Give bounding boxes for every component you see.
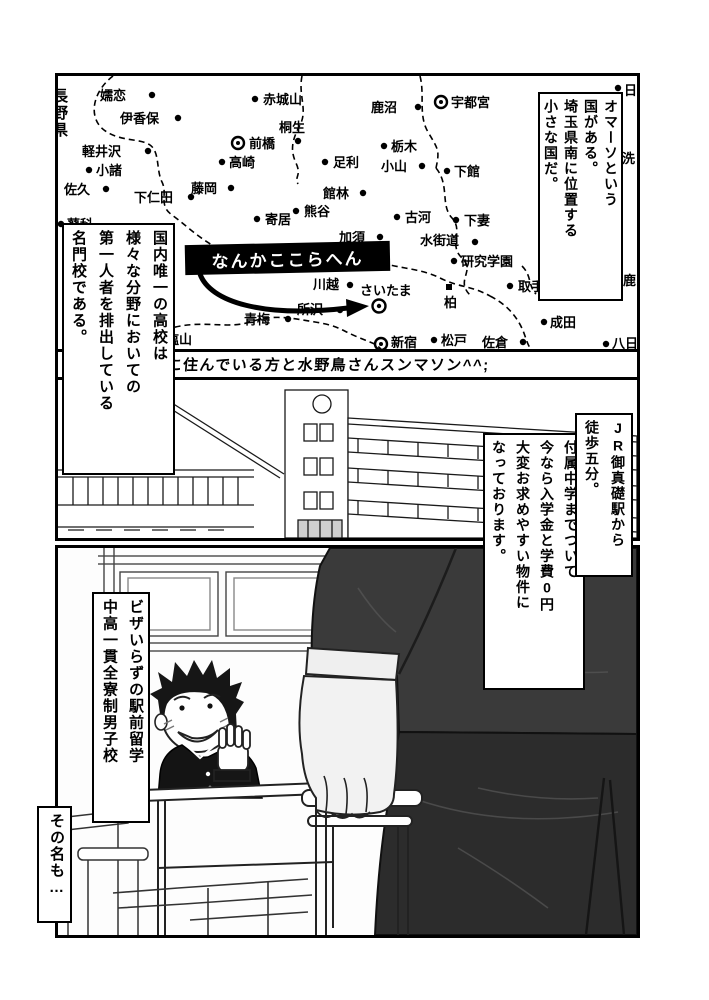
map-city-label: 藤岡 <box>191 181 217 196</box>
map-city-label: 佐久 <box>63 182 91 197</box>
map-city-label: 佐倉 <box>481 335 509 349</box>
manga-page: { "page": {"bg": "#ffffff", "ink": "#000… <box>0 0 709 1000</box>
arrow-icon <box>200 274 369 317</box>
map-city-label: 松戸 <box>441 333 467 348</box>
map-city-label: 寄居 <box>265 212 291 227</box>
map-note-text: なんかここらへん <box>211 244 363 272</box>
map-city-label: 熊谷 <box>304 204 331 219</box>
map-city-label: 前橋 <box>249 136 276 151</box>
map-city-label: 栃木 <box>391 139 418 154</box>
map-city-label: 鹿 <box>623 273 636 288</box>
map-city-label: 川越 <box>312 277 340 292</box>
map-city-label: 軽井沢 <box>82 144 122 159</box>
map-city-label: 小諸 <box>96 163 122 178</box>
map-city-label: 柏 <box>444 295 457 310</box>
map-city-label: 桐生 <box>279 120 305 135</box>
map-city-label: 宇都宮 <box>451 95 490 110</box>
map-city-label: 下館 <box>454 164 480 179</box>
map-city-label: 古河 <box>405 210 431 225</box>
map-city-label: 洗 <box>622 151 635 166</box>
pale-hand <box>299 676 397 815</box>
map-city-label: 下仁田 <box>134 190 173 205</box>
map-city-label: 嬬恋 <box>99 88 126 103</box>
map-city-label: 赤城山 <box>263 92 302 107</box>
caption-its-name: その名も… <box>37 806 72 923</box>
prefecture-edge-label: 長野県 <box>55 88 70 139</box>
map-city-label: 鹿沼 <box>371 100 397 115</box>
caption-elite-school: 国内唯一の高校は 様々な分野においての 第一人者を排出している 名門校である。 <box>62 223 175 475</box>
caption-sales-pitch: 付属中学までついて 今なら入学金と学費0円 大変お求めやすい物件に なっておりま… <box>483 433 585 690</box>
caption-school-type: ビザいらずの駅前留学 中高一貫全寮制男子校 <box>92 592 150 823</box>
map-city-label: さいたま <box>360 283 412 298</box>
map-city-label: 館林 <box>323 186 349 201</box>
map-city-label: 伊香保 <box>119 111 160 126</box>
map-city-label: 新宿 <box>391 335 417 349</box>
map-city-label: 研究学園 <box>461 254 513 269</box>
map-city-label: 八日 <box>611 336 637 349</box>
map-city-label: 日 <box>624 83 637 98</box>
shirt-cuff <box>306 648 399 680</box>
map-city-label: 下妻 <box>464 213 490 228</box>
waving-hand <box>214 724 250 781</box>
map-city-label: 小山 <box>381 159 407 174</box>
caption-station-access: JR御真礎駅から 徒歩五分。 <box>575 413 633 577</box>
map-city-label: 水街道 <box>420 233 459 248</box>
map-note-box: なんかここらへん <box>185 241 391 275</box>
map-city-label: 足利 <box>333 155 359 170</box>
map-city-label: 成田 <box>550 315 576 330</box>
caption-country: オマーソという 国がある。 埼玉県南に位置する 小さな国だ。 <box>538 92 623 301</box>
figure-hand <box>299 648 399 818</box>
map-city-label: 青梅 <box>244 312 270 327</box>
map-city-label: 高崎 <box>229 155 255 170</box>
